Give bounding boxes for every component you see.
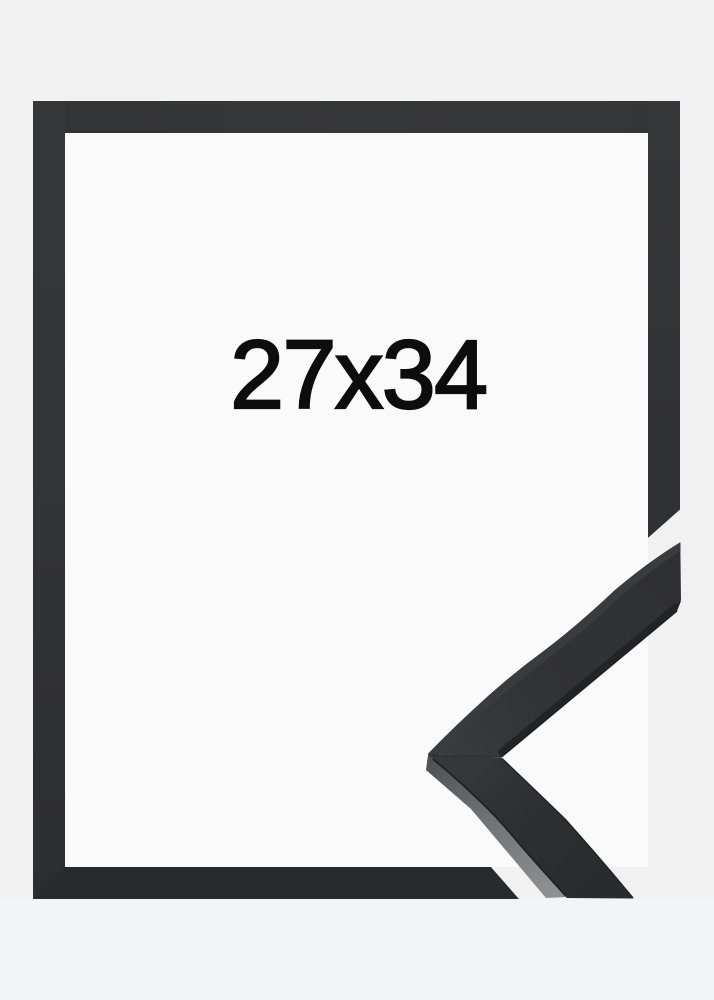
svg-text:27x34: 27x34 [230, 320, 486, 429]
